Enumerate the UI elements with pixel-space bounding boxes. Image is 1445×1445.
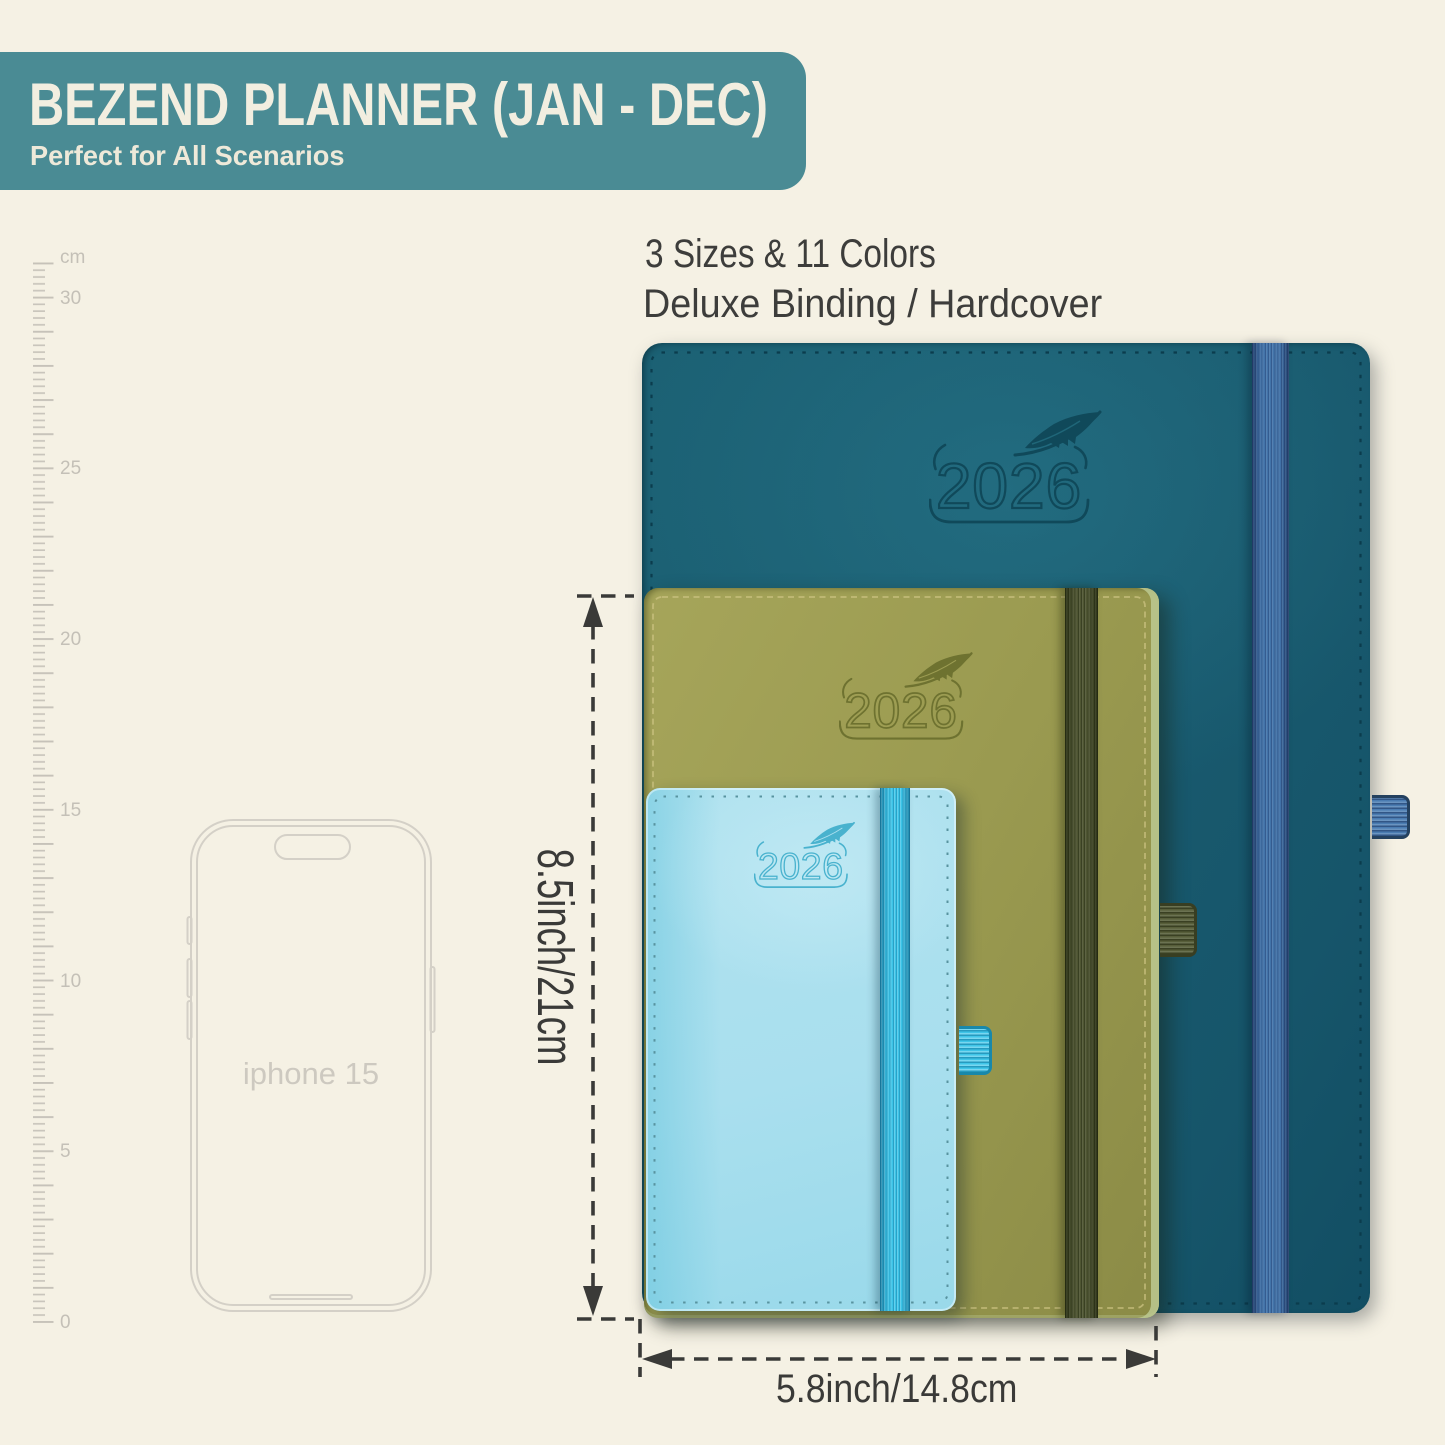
svg-text:15: 15 xyxy=(60,800,81,821)
svg-text:5: 5 xyxy=(60,1141,71,1162)
svg-text:10: 10 xyxy=(60,971,81,992)
svg-text:cm: cm xyxy=(60,247,85,268)
svg-text:25: 25 xyxy=(60,458,81,479)
svg-text:iphone 15: iphone 15 xyxy=(243,1056,379,1091)
svg-text:20: 20 xyxy=(60,629,81,650)
svg-text:30: 30 xyxy=(60,288,81,309)
svg-text:0: 0 xyxy=(60,1312,71,1333)
